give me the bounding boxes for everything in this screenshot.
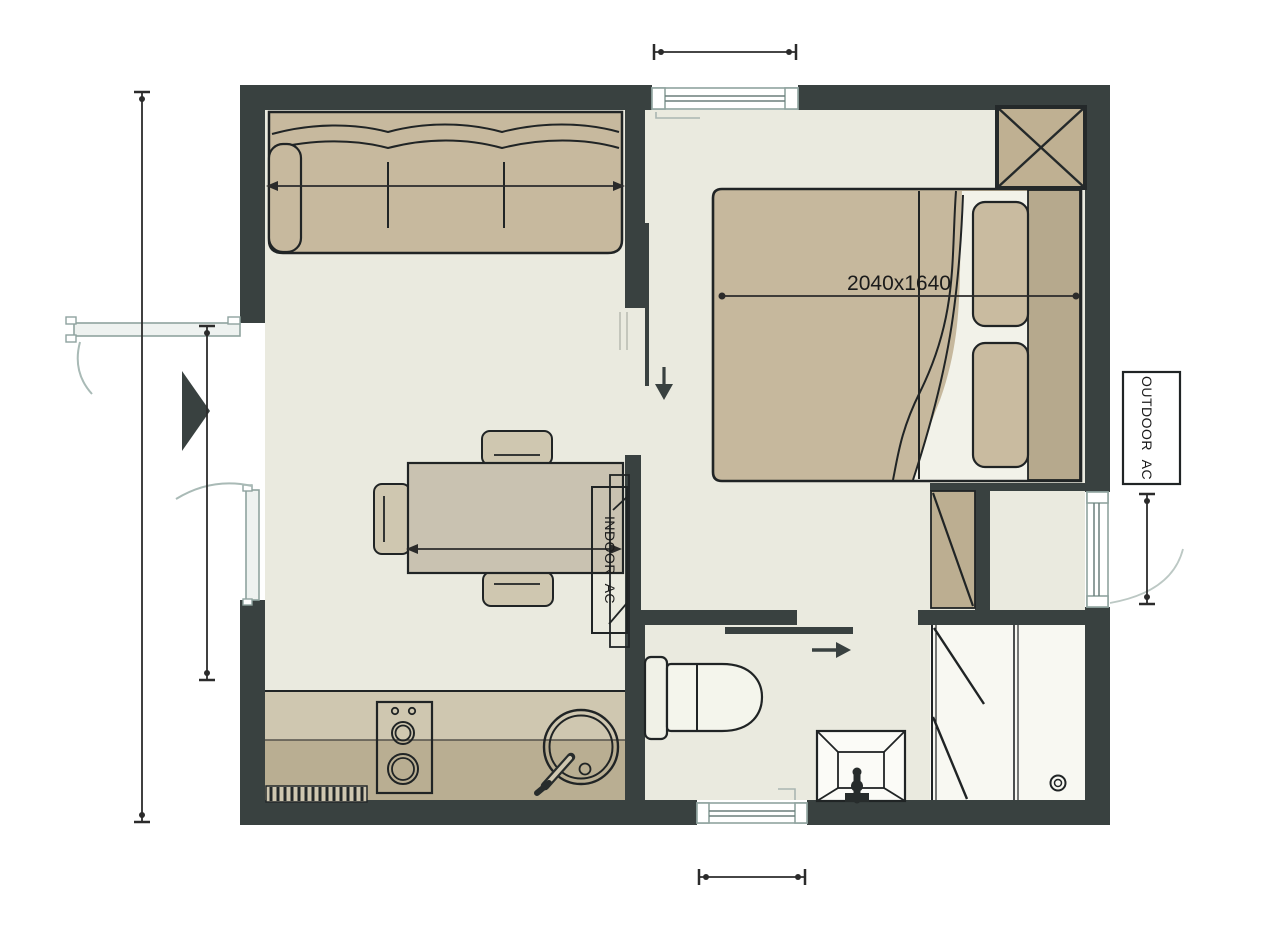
- wall-left-upper-segment: [240, 85, 265, 323]
- pillow: [973, 202, 1028, 326]
- dining-table: [408, 463, 623, 573]
- wall-top-left-segment: [240, 85, 652, 110]
- chair-top: [482, 431, 552, 465]
- entry-arrow-icon: [182, 371, 210, 451]
- dimension-top-window: [654, 44, 796, 60]
- sofa-body: [269, 112, 622, 253]
- sofa: [266, 112, 625, 253]
- chair-left: [374, 484, 410, 554]
- outdoor-ac-label: OUTDOOR AC: [1139, 376, 1155, 480]
- wall-bottom-right-segment: [807, 800, 1110, 825]
- entry-door-leaf-open: [74, 323, 240, 336]
- toilet: [645, 657, 762, 739]
- wall-right-upper-segment: [1085, 85, 1110, 492]
- wall-living-bedroom: [625, 110, 645, 308]
- wall-niche-left: [975, 485, 990, 623]
- bed-headboard: [1028, 190, 1080, 480]
- floor-plan: INDOOR AC OUTDOOR AC 2040x1640: [0, 0, 1280, 935]
- dimension-bottom-window: [699, 869, 805, 885]
- outdoor-ac-unit: OUTDOOR AC: [1123, 372, 1180, 484]
- door-swing-arc: [176, 483, 252, 499]
- wall-right-lower-segment: [1085, 607, 1110, 825]
- sliding-door-panel: [725, 627, 853, 634]
- wardrobe: [997, 107, 1085, 188]
- sliding-door-panel: [645, 223, 649, 386]
- sofa-armrest: [269, 144, 301, 252]
- drainboard-hatch: [266, 786, 367, 802]
- shower-floor: [930, 625, 1085, 800]
- pillow: [973, 343, 1028, 467]
- entry-door-left: [66, 317, 259, 605]
- toilet-tank: [645, 657, 667, 739]
- toilet-bowl: [667, 664, 762, 731]
- dimension-left-inner: [199, 326, 215, 680]
- indoor-ac-label: INDOOR AC: [602, 516, 618, 604]
- dimension-left-outer: [134, 92, 150, 822]
- floor-plan-page: INDOOR AC OUTDOOR AC 2040x1640: [0, 0, 1280, 935]
- storage-closet: [931, 491, 975, 608]
- wall-bathroom-top-right: [918, 610, 1085, 625]
- kitchen-counter: [265, 690, 625, 802]
- washbasin: [817, 731, 905, 802]
- side-door-right: [1087, 492, 1183, 607]
- counter-upper: [265, 690, 625, 740]
- wall-bathroom-top-left: [625, 610, 797, 625]
- bed-dimension-label: 2040x1640: [847, 272, 951, 295]
- wall-left-lower-segment: [240, 600, 265, 825]
- door-swing-arc: [78, 342, 92, 394]
- double-bed: [713, 189, 1081, 481]
- wall-living-bathroom: [625, 610, 645, 800]
- entry-sidelight: [246, 490, 259, 600]
- wall-bottom-left-segment: [240, 800, 697, 825]
- wall-bedroom-niche: [930, 483, 1085, 491]
- chair-bottom: [483, 572, 553, 606]
